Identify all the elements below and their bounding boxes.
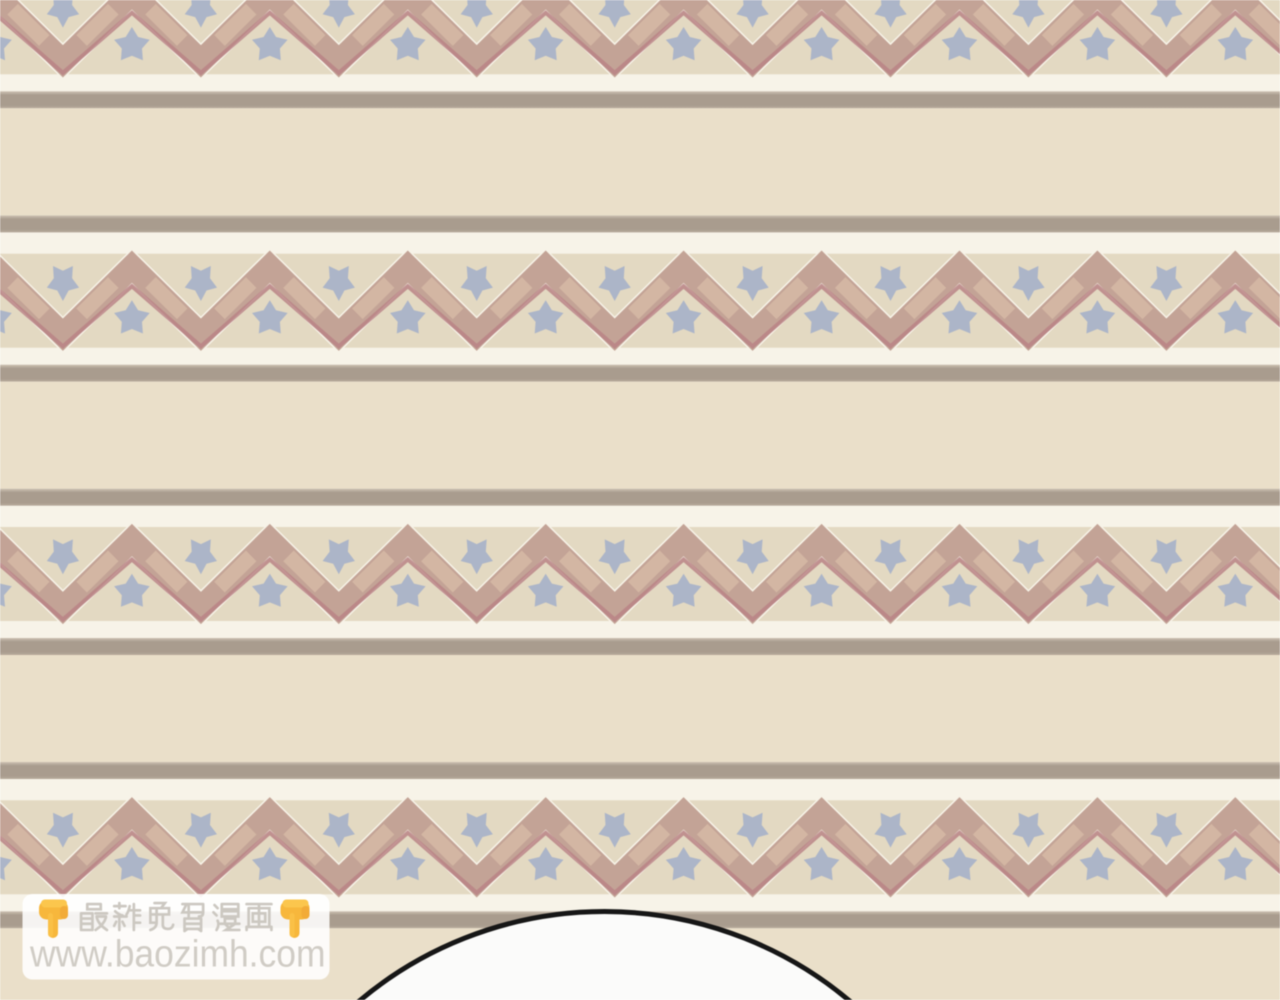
svg-text:www.baozimh.com: www.baozimh.com (29, 934, 325, 976)
